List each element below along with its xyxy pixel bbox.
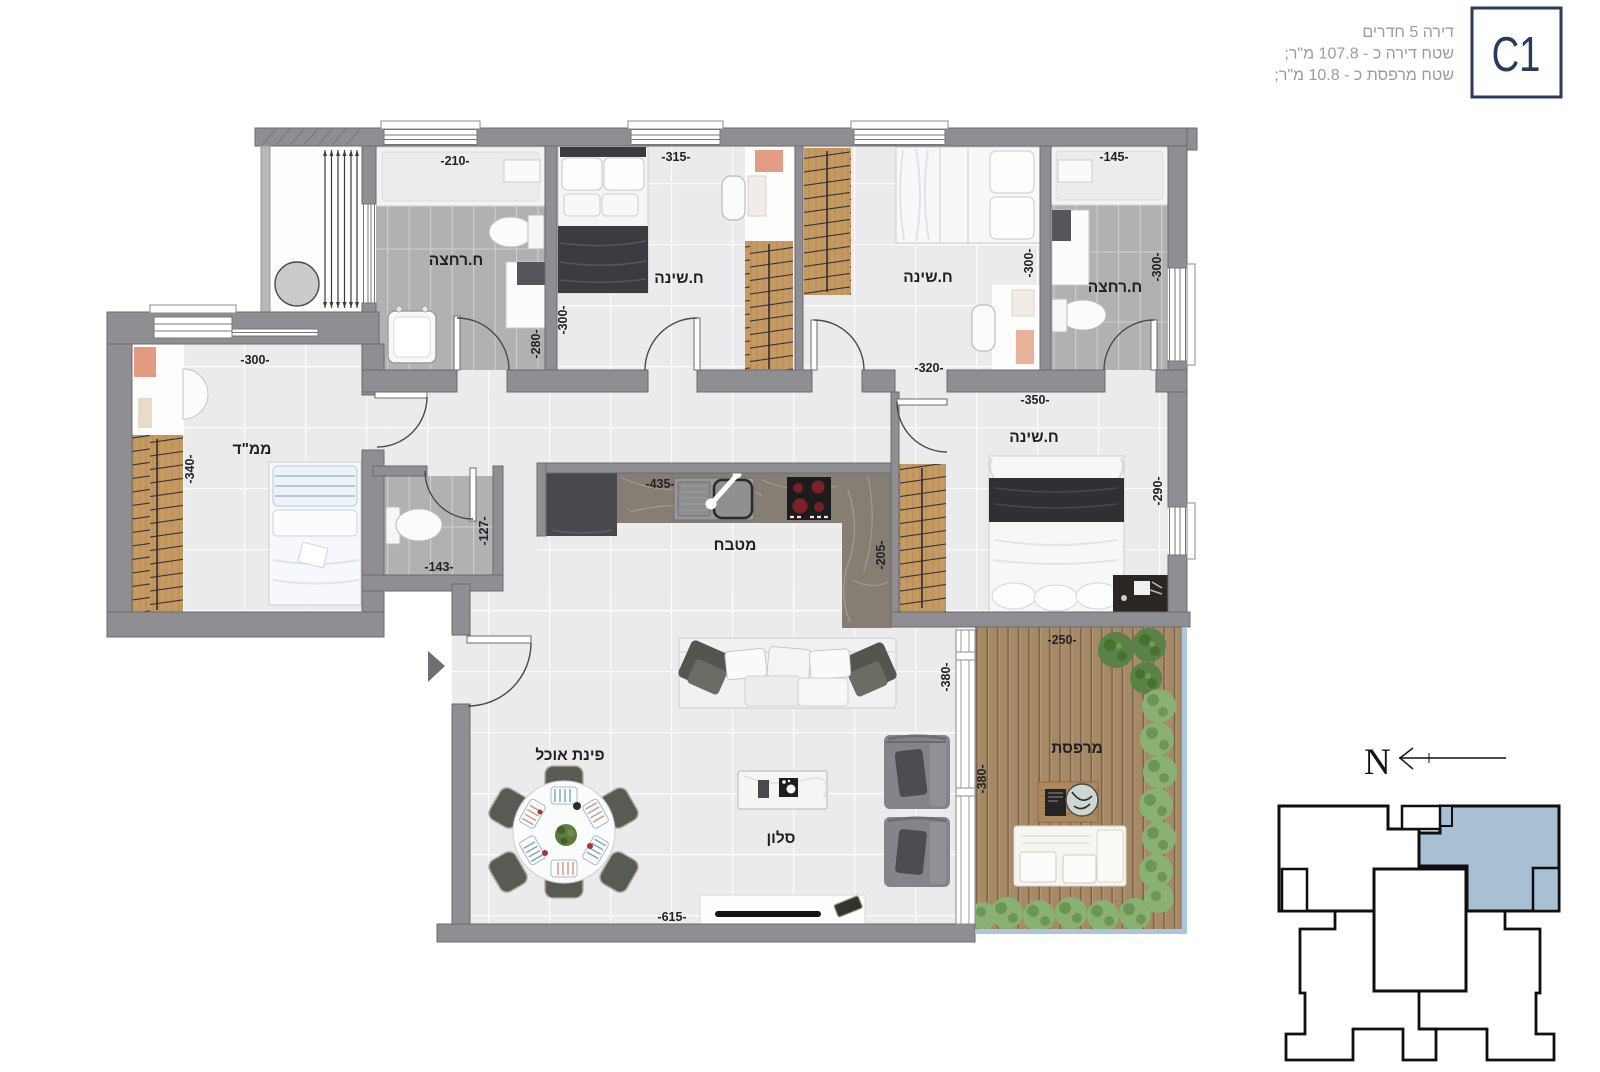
svg-text:-340-: -340-	[183, 454, 197, 483]
svg-text:-300-: -300-	[556, 305, 570, 334]
svg-text:-300-: -300-	[240, 353, 269, 367]
svg-text:C1: C1	[1492, 28, 1541, 83]
svg-text:-290-: -290-	[1151, 476, 1165, 505]
svg-text:-127-: -127-	[477, 516, 491, 545]
svg-text:ח.שינה: ח.שינה	[903, 269, 952, 286]
svg-text:ח.רחצה: ח.רחצה	[429, 252, 483, 269]
svg-text:שטח מרפסת כ - 10.8 מ"ר;: שטח מרפסת כ - 10.8 מ"ר;	[1274, 67, 1454, 84]
svg-text:פינת אוכל: פינת אוכל	[535, 747, 604, 764]
svg-text:סלון: סלון	[766, 830, 795, 847]
svg-text:-250-: -250-	[1047, 633, 1076, 647]
svg-text:ח.שינה: ח.שינה	[654, 270, 703, 287]
svg-text:ח.שינה: ח.שינה	[1009, 429, 1058, 446]
svg-text:-380-: -380-	[975, 764, 989, 793]
svg-text:שטח דירה כ - 107.8 מ"ר;: שטח דירה כ - 107.8 מ"ר;	[1284, 46, 1454, 63]
svg-text:-300-: -300-	[1150, 252, 1164, 281]
svg-text:דירה 5 חדרים: דירה 5 חדרים	[1362, 24, 1454, 41]
svg-text:-380-: -380-	[939, 662, 953, 691]
svg-text:-320-: -320-	[914, 361, 943, 375]
svg-text:-210-: -210-	[440, 154, 469, 168]
svg-text:-143-: -143-	[424, 560, 453, 574]
svg-text:-145-: -145-	[1099, 150, 1128, 164]
svg-text:ח.רחצה: ח.רחצה	[1088, 279, 1142, 296]
svg-text:-300-: -300-	[1022, 248, 1036, 277]
svg-text:-615-: -615-	[657, 910, 686, 924]
svg-text:מטבח: מטבח	[714, 537, 757, 554]
svg-text:-280-: -280-	[529, 329, 543, 358]
svg-text:N: N	[1364, 742, 1391, 783]
svg-text:מרפסת: מרפסת	[1051, 740, 1103, 757]
svg-text:-315-: -315-	[661, 150, 690, 164]
svg-text:-205-: -205-	[874, 540, 888, 569]
svg-text:-435-: -435-	[645, 477, 674, 491]
svg-text:ממ"ד: ממ"ד	[233, 441, 272, 458]
svg-text:-350-: -350-	[1020, 393, 1049, 407]
